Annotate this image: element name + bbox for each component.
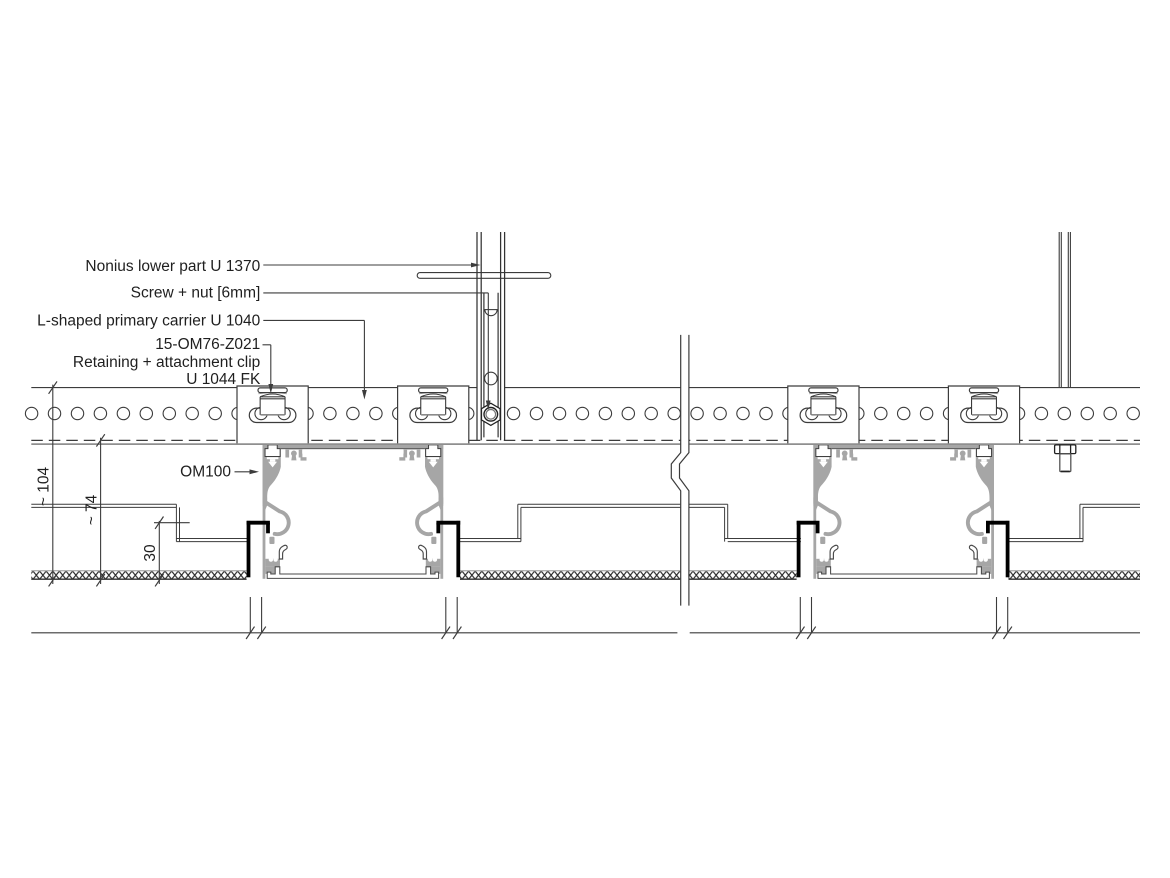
svg-text:15-OM76-Z021: 15-OM76-Z021 <box>155 336 260 353</box>
svg-text:~ 104: ~ 104 <box>36 467 53 507</box>
svg-text:Nonius lower part U 1370: Nonius lower part U 1370 <box>85 258 260 275</box>
svg-text:L-shaped primary carrier U 104: L-shaped primary carrier U 1040 <box>37 313 261 330</box>
svg-text:OM100: OM100 <box>180 464 231 481</box>
svg-text:~ 74: ~ 74 <box>83 494 100 525</box>
svg-text:Screw + nut [6mm]: Screw + nut [6mm] <box>131 285 261 302</box>
svg-text:Retaining + attachment clip: Retaining + attachment clip <box>73 354 260 371</box>
svg-text:U 1044 FK: U 1044 FK <box>186 371 261 388</box>
svg-text:30: 30 <box>142 544 159 562</box>
